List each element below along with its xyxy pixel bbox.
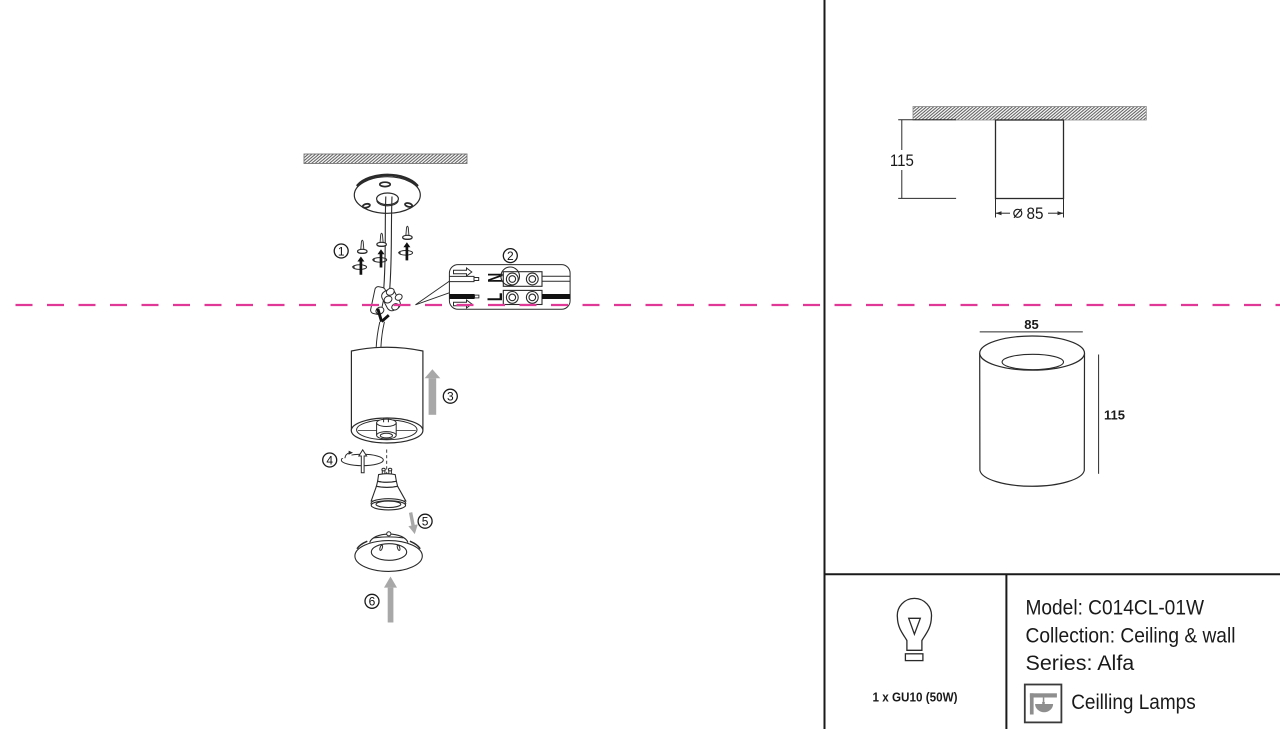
svg-text:1 x GU10 (50W): 1 x GU10 (50W) [873,689,958,704]
svg-text:115: 115 [890,151,914,170]
svg-text:5: 5 [422,515,429,529]
svg-text:4: 4 [326,453,333,467]
svg-text:Model: C014CL-01W: Model: C014CL-01W [1026,596,1205,620]
svg-text:Collection: Ceiling & wall: Collection: Ceiling & wall [1026,623,1236,647]
svg-text:1: 1 [338,244,345,258]
svg-text:2: 2 [507,249,514,263]
svg-text:6: 6 [369,595,376,609]
svg-text:85: 85 [1027,204,1044,223]
svg-text:115: 115 [1104,408,1125,423]
svg-text:Series: Alfa: Series: Alfa [1026,651,1135,675]
svg-text:85: 85 [1024,317,1038,332]
svg-text:Ceilling Lamps: Ceilling Lamps [1071,690,1196,714]
svg-text:3: 3 [447,390,454,404]
